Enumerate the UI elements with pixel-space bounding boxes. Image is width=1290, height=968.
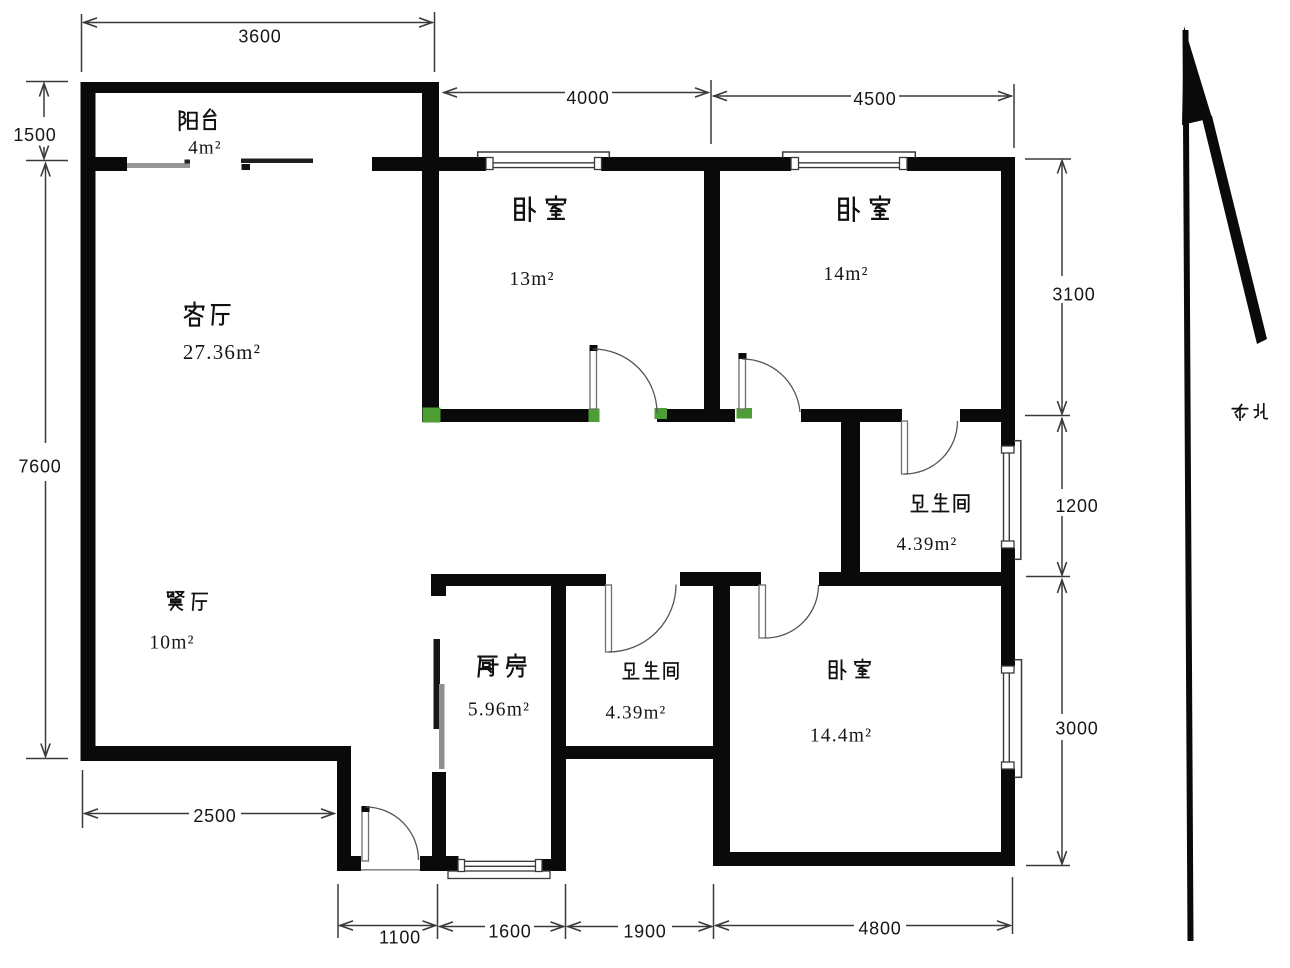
svg-text:4000: 4000 xyxy=(566,88,609,108)
svg-text:4.39m²: 4.39m² xyxy=(897,534,958,555)
svg-text:3600: 3600 xyxy=(238,27,281,47)
svg-text:14.4m²: 14.4m² xyxy=(810,726,872,747)
svg-text:1100: 1100 xyxy=(379,928,421,948)
svg-text:2500: 2500 xyxy=(193,806,236,826)
svg-text:27.36m²: 27.36m² xyxy=(183,340,261,364)
svg-text:4800: 4800 xyxy=(858,919,901,939)
svg-text:3100: 3100 xyxy=(1052,285,1095,305)
svg-text:3000: 3000 xyxy=(1055,719,1098,739)
svg-text:5.96m²: 5.96m² xyxy=(468,700,530,721)
svg-text:1900: 1900 xyxy=(623,922,666,942)
svg-text:14m²: 14m² xyxy=(823,264,868,285)
svg-text:4500: 4500 xyxy=(853,89,896,109)
svg-text:4.39m²: 4.39m² xyxy=(606,703,667,724)
svg-text:10m²: 10m² xyxy=(149,633,194,654)
svg-text:4m²: 4m² xyxy=(188,138,222,159)
svg-text:1600: 1600 xyxy=(488,922,531,942)
svg-text:13m²: 13m² xyxy=(509,269,554,290)
svg-text:1200: 1200 xyxy=(1055,496,1098,516)
svg-text:1500: 1500 xyxy=(13,125,56,145)
svg-text:7600: 7600 xyxy=(18,457,61,477)
